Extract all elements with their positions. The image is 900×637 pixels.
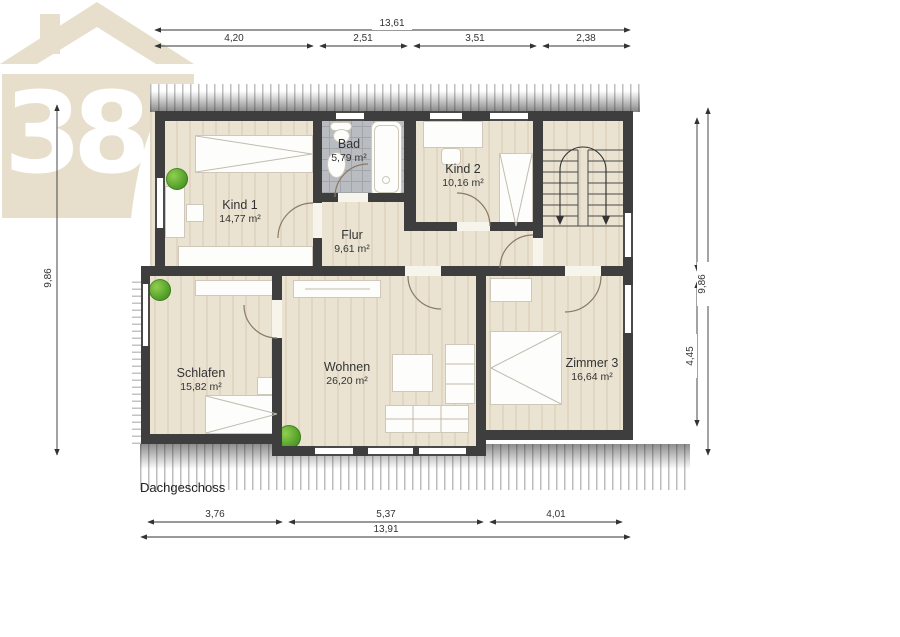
window-wohnen-bottom-c	[419, 446, 466, 456]
room-name: Kind 1	[190, 198, 290, 212]
dim-top-seg1: 4,20	[214, 33, 254, 45]
dim-top-seg3: 3,51	[455, 33, 495, 45]
dim-top-seg2: 2,51	[343, 33, 383, 45]
wall-mid-c	[601, 266, 633, 276]
wall-kind2-bottom-a	[416, 222, 457, 231]
room-name: Bad	[309, 137, 389, 151]
window-bad-top	[336, 111, 364, 121]
roof-hatch-top	[150, 84, 640, 112]
room-label-zimmer3: Zimmer 3 16,64 m²	[542, 356, 642, 383]
room-label-schlafen: Schlafen 15,82 m²	[151, 366, 251, 393]
room-name: Kind 2	[413, 162, 513, 176]
floor-plan: 38	[0, 0, 900, 637]
window-zimmer3-right	[623, 285, 633, 333]
dim-top-total: 13,61	[372, 18, 412, 30]
window-kind1-left	[155, 178, 165, 228]
wall-bottom-schlafen	[141, 434, 282, 444]
logo-number: 38	[4, 78, 142, 190]
door-landing	[533, 238, 543, 266]
dim-right-height: 9,86	[697, 262, 709, 306]
dim-left-height: 9,86	[43, 256, 55, 300]
room-area: 16,64 m²	[542, 371, 642, 383]
door-bad	[338, 193, 368, 202]
bathtub-drain	[382, 176, 390, 184]
dim-bottom-total: 13,91	[366, 524, 406, 536]
door-wohnen	[405, 266, 441, 276]
room-label-flur: Flur 9,61 m²	[302, 228, 402, 255]
wall-schlafen-wohnen-a	[272, 276, 282, 300]
room-area: 14,77 m²	[190, 213, 290, 225]
wall-schlafen-wohnen-b	[272, 338, 282, 434]
room-name: Schlafen	[151, 366, 251, 380]
room-label-kind1: Kind 1 14,77 m²	[190, 198, 290, 225]
door-zimmer3	[565, 266, 601, 276]
dim-top-seg4: 2,38	[566, 33, 606, 45]
dining-table-wohnen	[385, 405, 469, 433]
room-label-wohnen: Wohnen 26,20 m²	[297, 360, 397, 387]
room-area: 5,79 m²	[309, 152, 389, 164]
window-stair-right	[623, 213, 633, 257]
room-area: 26,20 m²	[297, 375, 397, 387]
window-kind2-top-a	[430, 111, 462, 121]
dim-bottom-seg1: 3,76	[195, 509, 235, 521]
door-kind2	[457, 222, 490, 231]
bed-schlafen	[205, 395, 278, 434]
room-area: 15,82 m²	[151, 381, 251, 393]
sofa-wohnen	[445, 344, 475, 404]
window-wohnen-bottom-a	[315, 446, 353, 456]
wall-outer-top	[155, 111, 633, 121]
window-wohnen-bottom-b	[368, 446, 413, 456]
room-name: Zimmer 3	[542, 356, 642, 370]
wall-wohnen-zimmer3	[476, 276, 486, 430]
nightstand-zimmer3	[490, 278, 532, 302]
wall-bottom-zimmer3	[476, 430, 633, 440]
plant-schlafen	[149, 279, 171, 301]
plant-kind1	[166, 168, 188, 190]
dresser-kind1	[178, 246, 313, 268]
door-schlafen	[272, 300, 282, 338]
dim-bottom-seg2: 5,37	[366, 509, 406, 521]
room-label-bad: Bad 5,79 m²	[309, 137, 389, 164]
armchair-wohnen	[392, 354, 433, 392]
shelf-schlafen	[195, 280, 277, 296]
wall-bad-bottom-a	[313, 193, 338, 202]
wardrobe-kind1	[165, 186, 185, 238]
wall-mid-a	[155, 266, 405, 276]
wall-landing	[533, 222, 543, 238]
room-area: 9,61 m²	[302, 243, 402, 255]
floor-title: Dachgeschoss	[140, 480, 225, 495]
room-area: 10,16 m²	[413, 177, 513, 189]
dim-bottom-seg3: 4,01	[536, 509, 576, 521]
window-kind2-top-b	[490, 111, 528, 121]
room-label-kind2: Kind 2 10,16 m²	[413, 162, 513, 189]
logo-roof	[0, 2, 194, 64]
desk-kind2	[423, 121, 483, 148]
bed-kind1	[195, 135, 313, 173]
window-schlafen-left	[141, 284, 150, 346]
wall-kind2-right	[533, 121, 543, 222]
room-name: Wohnen	[297, 360, 397, 374]
room-name: Flur	[302, 228, 402, 242]
wall-mid-b	[441, 266, 565, 276]
sideboard-wohnen	[293, 280, 381, 298]
dim-right-seg: 4,45	[685, 334, 697, 378]
